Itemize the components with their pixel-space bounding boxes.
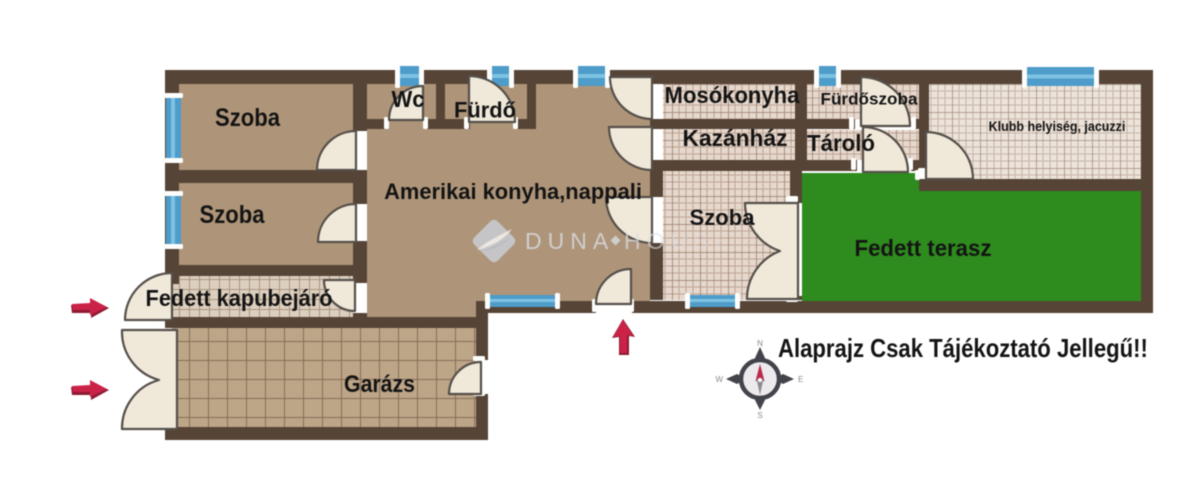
svg-text:Fedett terasz: Fedett terasz bbox=[855, 234, 992, 261]
svg-text:Kazánház: Kazánház bbox=[683, 125, 788, 151]
svg-text:Amerikai konyha,nappali: Amerikai konyha,nappali bbox=[384, 179, 642, 204]
svg-text:Klubb helyiség, jacuzzi: Klubb helyiség, jacuzzi bbox=[989, 119, 1126, 135]
svg-text:Alaprajz Csak Tájékoztató Jell: Alaprajz Csak Tájékoztató Jellegű!! bbox=[778, 334, 1148, 363]
svg-text:Fedett kapubejáró: Fedett kapubejáró bbox=[146, 285, 333, 311]
svg-text:Fürdő: Fürdő bbox=[454, 97, 516, 122]
svg-text:HOUSE: HOUSE bbox=[624, 228, 736, 254]
svg-text:W: W bbox=[715, 375, 723, 384]
svg-text:N: N bbox=[757, 339, 763, 348]
svg-text:Szoba: Szoba bbox=[690, 205, 756, 230]
svg-text:Wc: Wc bbox=[391, 87, 424, 113]
svg-text:Szoba: Szoba bbox=[200, 201, 266, 229]
svg-text:Garázs: Garázs bbox=[344, 370, 415, 398]
svg-text:Fürdőszoba: Fürdőszoba bbox=[821, 90, 918, 109]
svg-text:DUNA: DUNA bbox=[525, 228, 614, 254]
svg-text:Tároló: Tároló bbox=[807, 131, 875, 156]
svg-text:S: S bbox=[757, 411, 762, 420]
svg-text:Mosókonyha: Mosókonyha bbox=[665, 83, 800, 109]
svg-text:E: E bbox=[798, 375, 803, 384]
svg-text:Szoba: Szoba bbox=[215, 104, 281, 132]
